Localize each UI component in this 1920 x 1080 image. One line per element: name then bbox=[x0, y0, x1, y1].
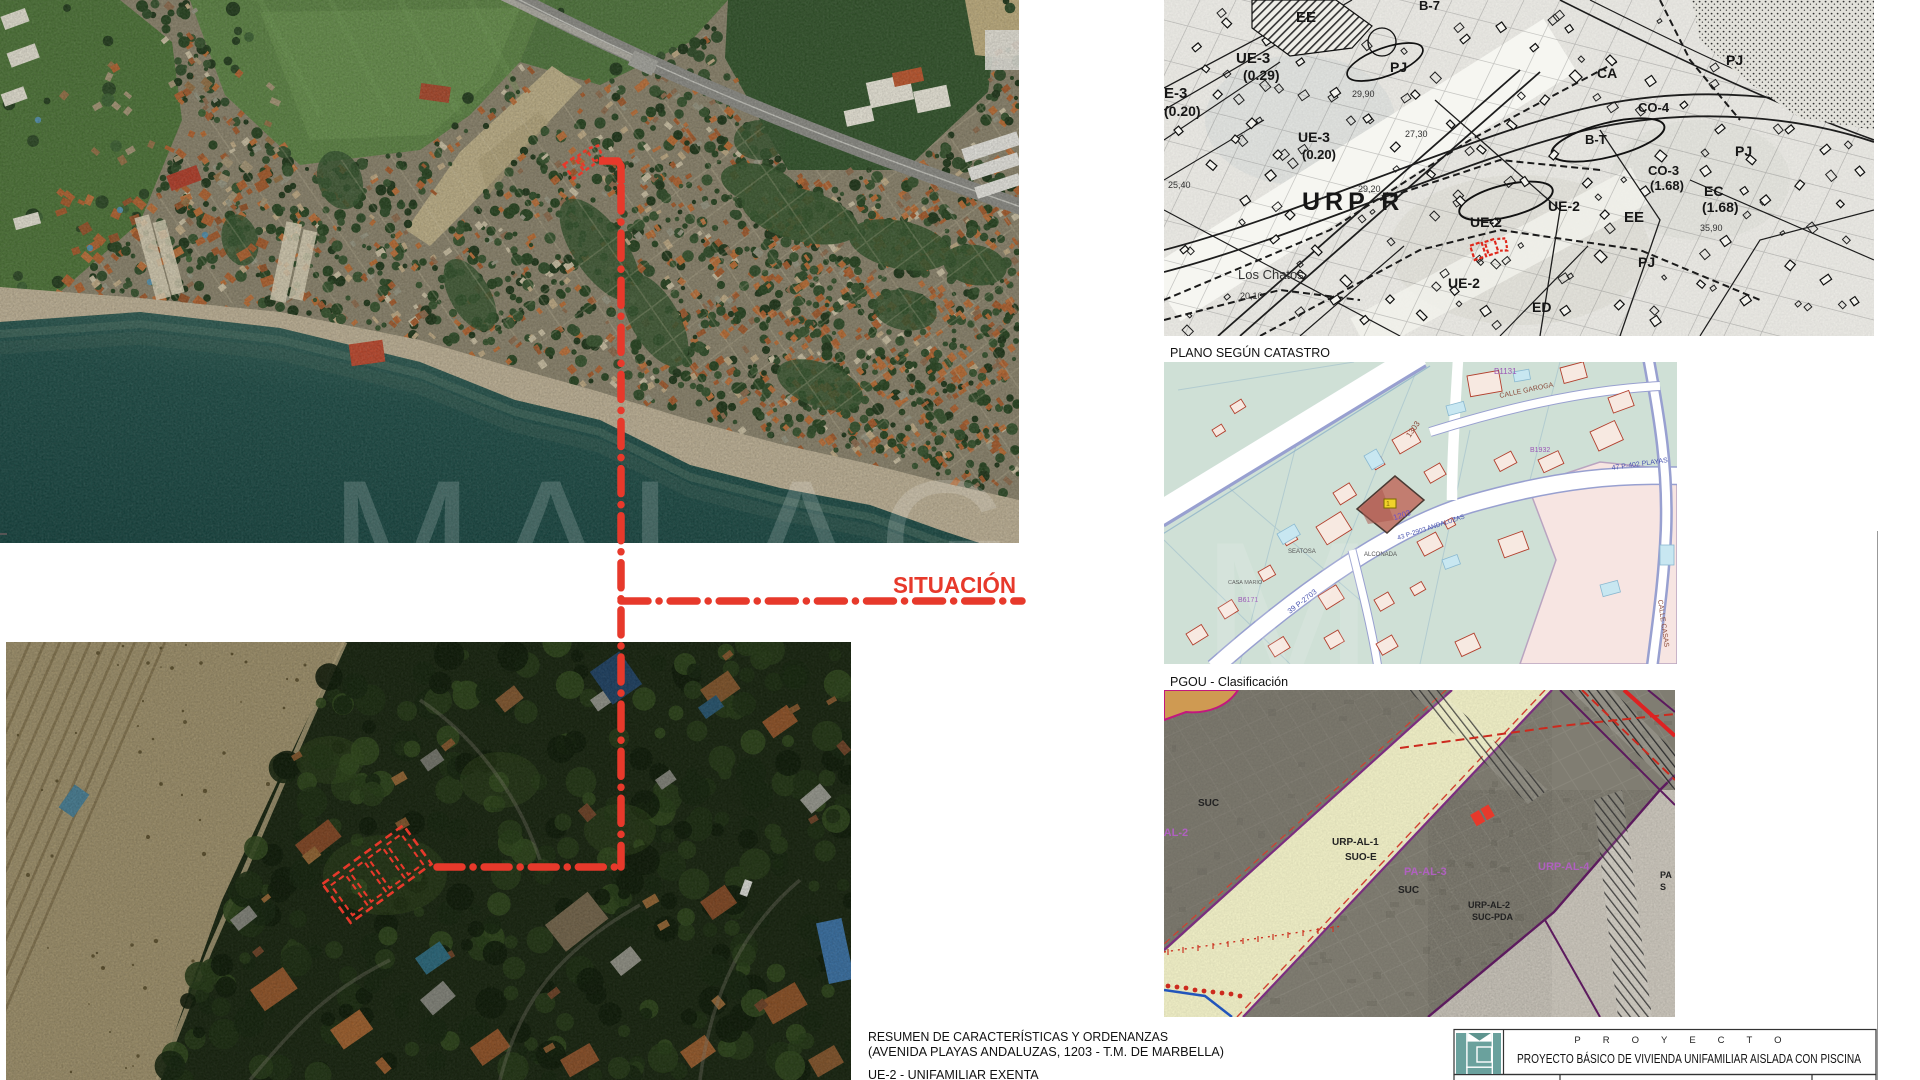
svg-text:25,40: 25,40 bbox=[1168, 180, 1191, 190]
svg-text:(0.29): (0.29) bbox=[1243, 67, 1280, 83]
svg-text:-AL-2: -AL-2 bbox=[1160, 827, 1188, 839]
svg-text:20,10: 20,10 bbox=[1240, 291, 1263, 301]
svg-text:UE-3: UE-3 bbox=[1236, 50, 1270, 67]
svg-text:URP-AL-4: URP-AL-4 bbox=[1538, 861, 1590, 873]
svg-text:PJ: PJ bbox=[1735, 143, 1752, 159]
svg-text:(0.20): (0.20) bbox=[1164, 103, 1201, 119]
svg-text:MALAGA: MALAGA bbox=[330, 445, 1167, 637]
svg-text:PA-AL-3: PA-AL-3 bbox=[1404, 866, 1447, 878]
svg-text:(0.20): (0.20) bbox=[1302, 147, 1336, 162]
svg-text:CO-3: CO-3 bbox=[1648, 163, 1679, 178]
svg-text:35,90: 35,90 bbox=[1700, 223, 1723, 233]
svg-text:B-7: B-7 bbox=[1419, 0, 1440, 13]
svg-text:PJ: PJ bbox=[1726, 52, 1743, 68]
svg-text:PGOU - Clasificación: PGOU - Clasificación bbox=[1170, 675, 1288, 689]
svg-text:URP R: URP R bbox=[1302, 188, 1404, 216]
svg-text:27,30: 27,30 bbox=[1405, 129, 1428, 139]
svg-text:PJ: PJ bbox=[1638, 254, 1655, 270]
svg-text:UE-2: UE-2 bbox=[1448, 275, 1480, 291]
svg-text:SUC: SUC bbox=[1198, 798, 1219, 809]
svg-text:SUC: SUC bbox=[1398, 885, 1419, 896]
svg-text:UE-2: UE-2 bbox=[1548, 198, 1580, 214]
svg-text:URP-AL-1: URP-AL-1 bbox=[1332, 837, 1379, 848]
svg-text:ED: ED bbox=[1532, 299, 1551, 315]
svg-text:URP-AL-2: URP-AL-2 bbox=[1468, 900, 1510, 910]
svg-text:SUO-E: SUO-E bbox=[1345, 852, 1377, 863]
svg-text:EC: EC bbox=[1704, 183, 1723, 199]
svg-text:CA: CA bbox=[1597, 65, 1617, 81]
svg-text:Los Chatos: Los Chatos bbox=[1238, 267, 1304, 282]
svg-text:RESUMEN DE CARACTERÍSTICAS Y O: RESUMEN DE CARACTERÍSTICAS Y ORDENANZAS bbox=[868, 1029, 1168, 1044]
svg-text:B1932: B1932 bbox=[1530, 447, 1550, 454]
svg-text:B1131: B1131 bbox=[1494, 367, 1517, 376]
svg-text:PA: PA bbox=[1660, 870, 1672, 880]
svg-text:EE: EE bbox=[1624, 209, 1644, 226]
svg-text:SITUACIÓN: SITUACIÓN bbox=[893, 571, 1016, 598]
svg-text:UE-3: UE-3 bbox=[1298, 129, 1330, 145]
svg-text:CO-4: CO-4 bbox=[1638, 100, 1670, 115]
svg-text:SUC-PDA: SUC-PDA bbox=[1472, 912, 1514, 922]
svg-text:(1.68): (1.68) bbox=[1650, 178, 1684, 193]
svg-text:PROYECTO: PROYECTO bbox=[1574, 1035, 1803, 1046]
svg-text:29,20: 29,20 bbox=[1358, 184, 1381, 194]
svg-text:UE-2 - UNIFAMILIAR EXENTA: UE-2 - UNIFAMILIAR EXENTA bbox=[868, 1068, 1039, 1080]
svg-text:1: 1 bbox=[1386, 501, 1390, 508]
svg-text:E-3: E-3 bbox=[1164, 85, 1187, 102]
svg-text:S: S bbox=[1660, 882, 1666, 892]
svg-text:PJ: PJ bbox=[1390, 59, 1407, 75]
svg-text:PLANO SEGÚN CATASTRO: PLANO SEGÚN CATASTRO bbox=[1170, 345, 1330, 360]
svg-text:B-T: B-T bbox=[1585, 132, 1607, 147]
svg-text:PROYECTO BÁSICO DE VIVIENDA UN: PROYECTO BÁSICO DE VIVIENDA UNIFAMILIAR … bbox=[1517, 1051, 1861, 1066]
svg-text:EE: EE bbox=[1296, 9, 1316, 26]
svg-text:(1.68): (1.68) bbox=[1702, 199, 1739, 215]
svg-text:(AVENIDA PLAYAS ANDALUZAS, 120: (AVENIDA PLAYAS ANDALUZAS, 1203 - T.M. D… bbox=[868, 1045, 1224, 1059]
svg-text:29,90: 29,90 bbox=[1352, 89, 1375, 99]
svg-text:UE-2: UE-2 bbox=[1470, 214, 1502, 230]
